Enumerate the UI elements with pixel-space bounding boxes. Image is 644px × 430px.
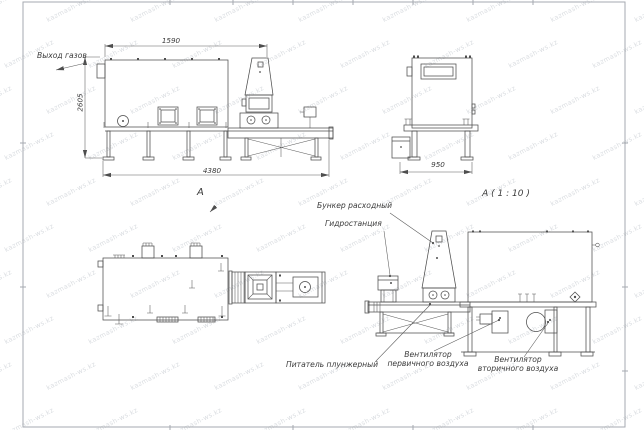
dim-2605: 2605 xyxy=(76,85,85,121)
furnace-body xyxy=(97,58,228,127)
detail-a-title: А ( 1 : 10 ) xyxy=(466,189,546,200)
secondary-air-fan xyxy=(527,310,558,333)
drawing-sheet: kazmash-ws.kzkazmash-ws.kzkazmash-ws.kzk… xyxy=(0,0,644,430)
support-frame xyxy=(103,122,231,160)
gas-outlet-leader-arrow xyxy=(56,63,86,70)
hydrostation-label: Гидростанция xyxy=(325,219,382,228)
hopper-label: Бункер расходный xyxy=(317,201,392,210)
leader-lines xyxy=(376,213,549,361)
view-end-elevation xyxy=(392,56,478,175)
gas-outlet-label: Выход газов xyxy=(37,51,87,60)
plunger-feeder-unit xyxy=(365,301,470,336)
primary-fan-label: Вентилятор первичного воздуха xyxy=(382,350,474,369)
hydrostation-unit xyxy=(378,276,398,302)
hopper-top-view xyxy=(245,272,276,303)
dim-950: 950 xyxy=(422,160,454,169)
hopper-assembly xyxy=(240,58,316,128)
feeder-top-view xyxy=(276,272,325,303)
view-plan xyxy=(98,206,325,324)
plan-view-arrow-label: А xyxy=(197,187,204,200)
dim-1590: 1590 xyxy=(151,36,191,45)
primary-air-fan xyxy=(476,311,508,333)
view-a-direction-arrow xyxy=(210,206,216,212)
furnace-body-detail xyxy=(460,231,599,357)
feeder-trough xyxy=(228,127,333,160)
view-side-elevation xyxy=(56,44,333,177)
hopper-detail xyxy=(422,231,456,302)
flange-ring xyxy=(229,271,245,304)
feeder-label: Питатель плунжерный xyxy=(286,360,378,369)
view-detail-a xyxy=(365,213,599,361)
dim-4380: 4380 xyxy=(192,166,232,175)
secondary-fan-label: Вентилятор вторичного воздуха xyxy=(472,355,564,374)
